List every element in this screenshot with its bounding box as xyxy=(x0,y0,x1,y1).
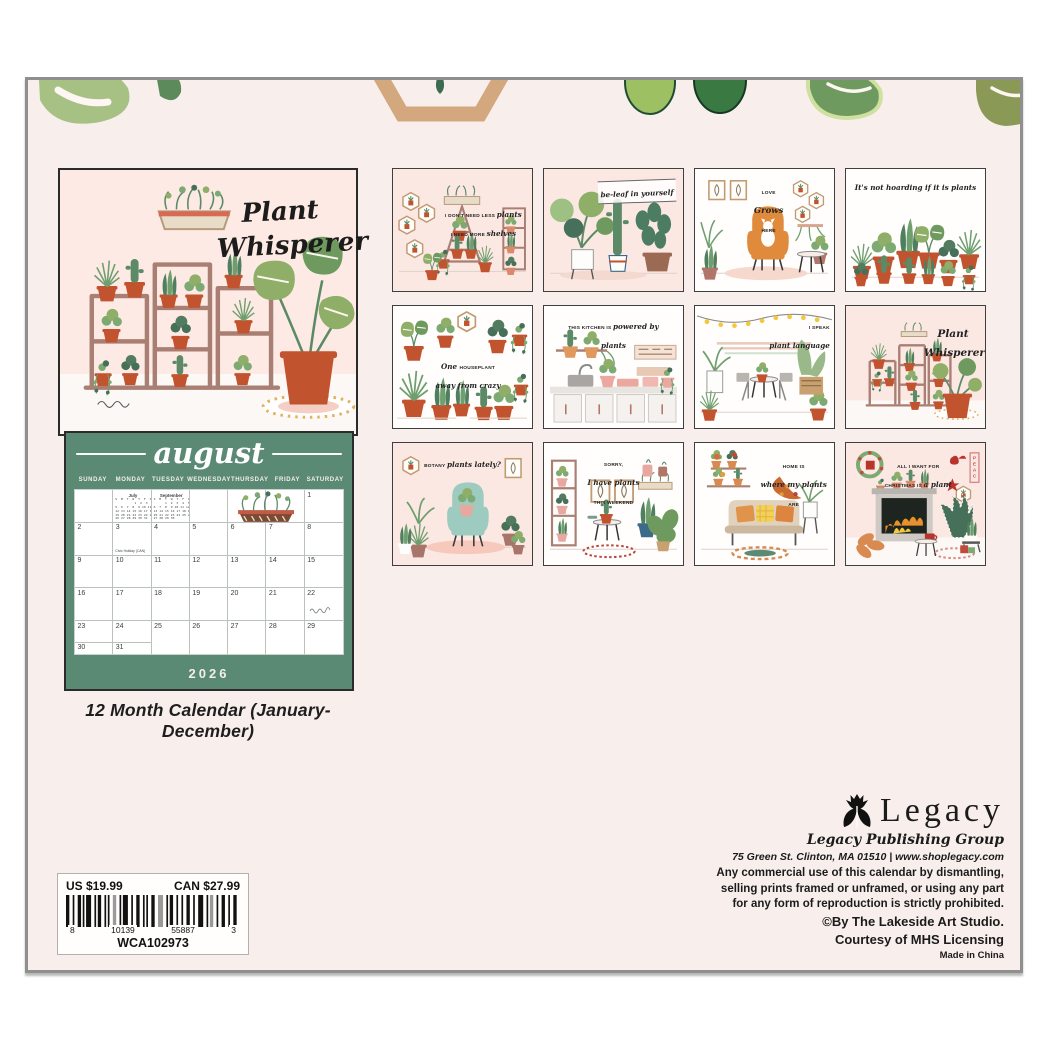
caption-line: THIS WEEKEND xyxy=(575,490,653,509)
calendar-day-cell: 13 xyxy=(228,556,266,589)
mini-month-july: JulyS M T W T F S 1 2 3 4 5 6 7 8 9 10 1… xyxy=(113,492,150,522)
thumbnail-6-caption: THIS KITCHEN IS powered by plants xyxy=(555,315,672,353)
calendar-day-cell: 28 xyxy=(266,621,304,654)
calendar-day-cell: 18 xyxy=(152,588,190,621)
thumbnail-7-caption: I SPEAKplant language xyxy=(765,315,830,353)
top-decorative-leaves xyxy=(28,80,1020,150)
calendar-day-cell: 27 xyxy=(228,621,266,654)
sku-code: WCA102973 xyxy=(66,936,240,950)
calendar-day-cell: 2431 xyxy=(113,621,151,654)
publisher-group: Legacy Publishing Group xyxy=(584,832,1004,848)
barcode-bars xyxy=(66,895,240,927)
thumbnail-3: LOVEGrowsHERE xyxy=(694,168,835,292)
cover-title-line2: Whisperer xyxy=(216,226,348,267)
product-caption: 12 Month Calendar (January-December) xyxy=(52,700,364,742)
svg-text:P: P xyxy=(973,456,977,462)
caption-line: CHRISTMAS IS a plant xyxy=(882,473,954,492)
thumbnail-10-caption: SORRY,I have plantsTHIS WEEKEND xyxy=(575,452,653,510)
thumbnail-4: It's not hoarding if it is plants xyxy=(845,168,986,292)
copyright-line: ©By The Lakeside Art Studio. xyxy=(584,913,1004,931)
calendar-day-cell: 14 xyxy=(266,556,304,589)
publisher-address: 75 Green St. Clinton, MA 01510 | www.sho… xyxy=(584,851,1004,863)
caption-line: HOME IS xyxy=(759,454,829,473)
caption-line: I SPEAK xyxy=(765,315,830,334)
calendar-grid-wrap: JulyS M T W T F S 1 2 3 4 5 6 7 8 9 10 1… xyxy=(74,489,344,655)
caption-line: I NEED MORE shelves xyxy=(440,222,526,241)
svg-text:E: E xyxy=(973,462,977,468)
thumbnail-12-caption: ALL I WANT FORCHRISTMAS IS a plant xyxy=(882,454,954,492)
caption-line: HERE xyxy=(751,218,787,237)
calendar-day-cell: 3Civic Holiday (CAN) xyxy=(113,523,151,556)
holiday-note: Civic Holiday (CAN) xyxy=(115,549,145,553)
weekday-label: WEDNESDAY xyxy=(187,477,231,483)
publisher-block: Legacy Legacy Publishing Group 75 Green … xyxy=(584,792,1004,961)
legal-line-1: Any commercial use of this calendar by d… xyxy=(584,866,1004,882)
calendar-day-cell: 26 xyxy=(190,621,228,654)
thumbnail-8-caption: PlantWhisperer xyxy=(924,323,982,361)
august-calendar-page: august SUNDAYMONDAYTUESDAYWEDNESDAYTHURS… xyxy=(64,431,354,691)
calendar-day-cell: 9 xyxy=(75,556,113,589)
calendar-day-cell: 4 xyxy=(152,523,190,556)
calendar-day-cell: 20 xyxy=(228,588,266,621)
thumbnail-8: PlantWhisperer xyxy=(845,305,986,429)
calendar-year: 2026 xyxy=(66,666,352,681)
thumbnail-2: be-leaf in yourself xyxy=(543,168,684,292)
thumbnail-5-caption: One HOUSEPLANTaway from crazy xyxy=(429,355,507,393)
august-header: august xyxy=(76,439,342,468)
calendar-day-cell: 15 xyxy=(305,556,343,589)
caption-line: BOTANY plants lately? xyxy=(412,453,512,472)
calendar-day-cell: 1 xyxy=(305,490,343,523)
caption-line: where my plants xyxy=(759,473,829,492)
thumbnail-3-caption: LOVEGrowsHERE xyxy=(751,180,787,238)
calendar-day-cell: 8 xyxy=(305,523,343,556)
weekday-header-row: SUNDAYMONDAYTUESDAYWEDNESDAYTHURSDAYFRID… xyxy=(74,477,344,483)
cover-title: Plant Whisperer xyxy=(214,193,347,267)
caption-line: be-leaf in yourself xyxy=(598,181,676,203)
weekday-label: FRIDAY xyxy=(269,477,307,483)
svg-text:C: C xyxy=(973,473,977,479)
month-name: august xyxy=(154,439,265,468)
svg-text:A: A xyxy=(973,468,977,474)
calendar-day-cell: 17 xyxy=(113,588,151,621)
calendar-day-cell: SeptemberS M T W T F S 1 2 3 4 5 6 7 8 9… xyxy=(152,490,190,523)
caption-line: Whisperer xyxy=(924,342,982,361)
caption-line: One HOUSEPLANT xyxy=(429,355,507,374)
thumbnail-4-caption: It's not hoarding if it is plants xyxy=(853,176,978,195)
mini-month-september: SeptemberS M T W T F S 1 2 3 4 5 6 7 8 9… xyxy=(152,492,189,522)
monthly-thumbnails-grid: I DON'T NEED LESS plantsI NEED MORE shel… xyxy=(392,168,988,636)
calendar-day-cell: 5 xyxy=(190,523,228,556)
calendar-day-cell: 29 xyxy=(305,621,343,654)
calendar-back-panel: Plant Whisperer august SUNDAYMONDAYTUESD… xyxy=(25,77,1023,973)
basket-illustration xyxy=(228,491,304,523)
caption-line: plant language xyxy=(765,334,830,353)
thumbnail-2-caption: be-leaf in yourself xyxy=(598,179,677,205)
barcode-box: US $19.99 CAN $27.99 8 10139 55887 3 WCA… xyxy=(57,873,249,955)
thumbnail-12: P E A C ALL I WANT xyxy=(845,442,986,566)
made-in-line: Made in China xyxy=(584,950,1004,961)
upc-right: 3 xyxy=(229,925,238,935)
weekday-label: MONDAY xyxy=(112,477,150,483)
calendar-day-cell xyxy=(190,490,228,523)
calendar-day-cell: 7 xyxy=(266,523,304,556)
weekday-label: TUESDAY xyxy=(149,477,187,483)
legacy-tulip-icon xyxy=(840,792,874,830)
weekday-label: SUNDAY xyxy=(74,477,112,483)
thumbnail-5: One HOUSEPLANTaway from crazy xyxy=(392,305,533,429)
calendar-day-cell: 22 xyxy=(305,588,343,621)
calendar-day-cell: 2330 xyxy=(75,621,113,654)
caption-line: ALL I WANT FOR xyxy=(882,454,954,473)
calendar-day-cell: 11 xyxy=(152,556,190,589)
header-rule-right xyxy=(272,453,342,455)
calendar-day-cell: 10 xyxy=(113,556,151,589)
artist-signature xyxy=(309,606,331,614)
thumbnail-11-caption: HOME ISwhere my plantsARE xyxy=(759,454,829,512)
weekday-label: SATURDAY xyxy=(306,477,344,483)
courtesy-line: Courtesy of MHS Licensing xyxy=(584,931,1004,949)
thumbnail-1-caption: I DON'T NEED LESS plantsI NEED MORE shel… xyxy=(440,203,526,241)
thumbnail-11: HOME ISwhere my plantsARE xyxy=(694,442,835,566)
price-row: US $19.99 CAN $27.99 xyxy=(66,879,240,893)
thumbnail-6: THIS KITCHEN IS powered by plants xyxy=(543,305,684,429)
brand-wordmark: Legacy xyxy=(880,792,1004,830)
thumbnail-9-caption: BOTANY plants lately? xyxy=(412,453,512,472)
caption-line: It's not hoarding if it is plants xyxy=(853,176,978,195)
weekday-label: THURSDAY xyxy=(231,477,269,483)
caption-line: SORRY, xyxy=(575,452,653,471)
calendar-day-cell: 19 xyxy=(190,588,228,621)
calendar-day-cell: 16 xyxy=(75,588,113,621)
upc-left: 8 xyxy=(68,925,77,935)
calendar-day-cell: 2 xyxy=(75,523,113,556)
calendar-day-cell: 21 xyxy=(266,588,304,621)
caption-line: THIS KITCHEN IS powered by plants xyxy=(555,315,672,353)
thumbnail-1: I DON'T NEED LESS plantsI NEED MORE shel… xyxy=(392,168,533,292)
calendar-day-cell: 6 xyxy=(228,523,266,556)
header-rule-left xyxy=(76,453,146,455)
price-us: US $19.99 xyxy=(66,879,123,893)
caption-line: away from crazy xyxy=(429,374,507,393)
thumbnail-10: SORRY,I have plantsTHIS WEEKEND xyxy=(543,442,684,566)
caption-line: I DON'T NEED LESS plants xyxy=(440,203,526,222)
legal-text: Any commercial use of this calendar by d… xyxy=(584,866,1004,913)
cover-art: Plant Whisperer xyxy=(58,168,358,436)
caption-line: I have plants xyxy=(575,471,653,490)
calendar-day-cell: JulyS M T W T F S 1 2 3 4 5 6 7 8 9 10 1… xyxy=(113,490,151,523)
overflow-day: 30 xyxy=(75,642,112,654)
calendar-day-cell: 12 xyxy=(190,556,228,589)
upc-mid2: 55887 xyxy=(169,925,197,935)
caption-line: Plant xyxy=(924,323,982,342)
price-can: CAN $27.99 xyxy=(174,879,240,893)
caption-line: Grows xyxy=(751,199,787,218)
thumbnail-7: I SPEAKplant language xyxy=(694,305,835,429)
overflow-day: 31 xyxy=(113,642,150,654)
thumbnail-9: BOTANY plants lately? xyxy=(392,442,533,566)
legal-line-3: for any form of reproduction is strictly… xyxy=(584,897,1004,913)
calendar-day-cell xyxy=(75,490,113,523)
legal-line-2: selling prints framed or unframed, or us… xyxy=(584,882,1004,898)
brand-logo-row: Legacy xyxy=(584,792,1004,830)
calendar-day-cell: 25 xyxy=(152,621,190,654)
caption-line: LOVE xyxy=(751,180,787,199)
upc-mid1: 10139 xyxy=(109,925,137,935)
caption-line: ARE xyxy=(759,492,829,511)
